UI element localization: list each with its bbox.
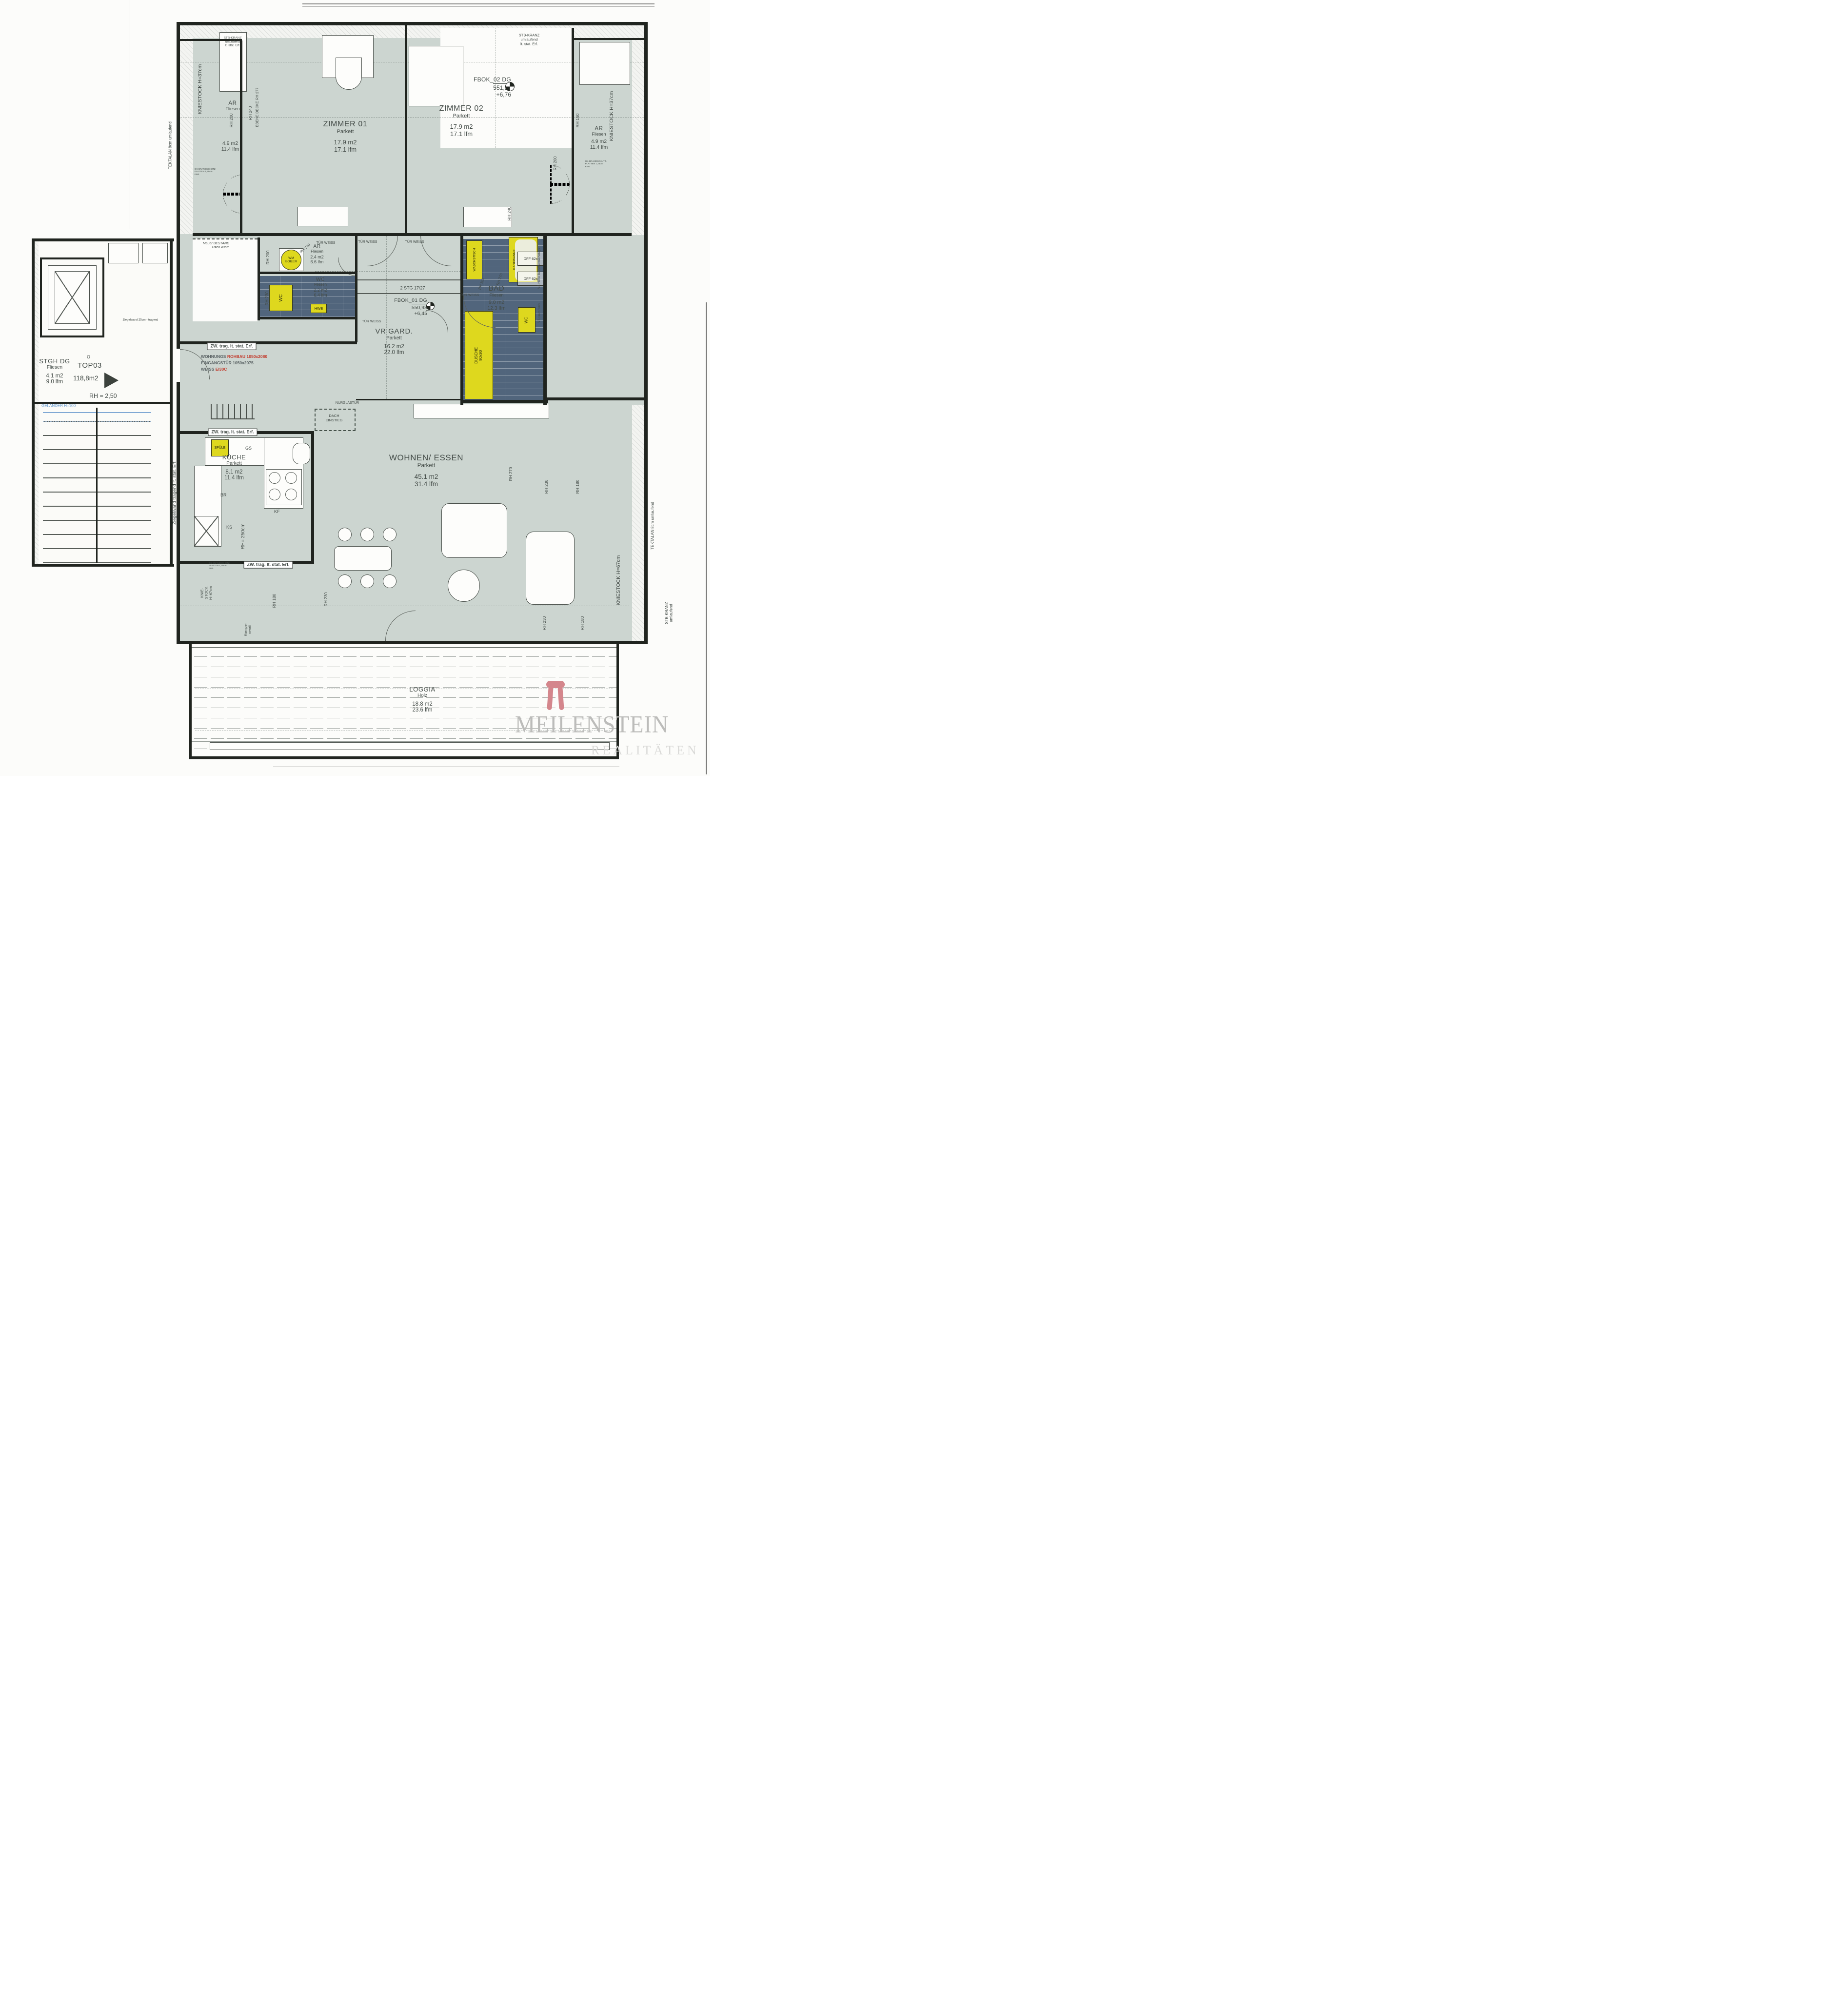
kemper-label: Kemper ventil: [244, 623, 253, 636]
level-label: FBOK_01 DG: [394, 297, 427, 303]
level-relative: +6,76: [496, 91, 511, 98]
rh-240-z2-label: RH 240: [507, 207, 512, 221]
wall-segment: [356, 399, 461, 400]
entrance-door-opening: [177, 349, 180, 382]
wall-segment: [40, 336, 104, 337]
stove-burner-icon: [269, 489, 280, 500]
wall-segment: [32, 238, 174, 241]
wall-segment: [40, 257, 104, 259]
gelaender-label: GELÄNDER H=100: [41, 403, 76, 408]
kniestock-strip: [180, 25, 644, 38]
room-name: ZIMMER 02: [439, 104, 484, 113]
furniture-box: [463, 207, 512, 227]
room-area: 4.9 m2: [222, 140, 238, 146]
room-area: 18.8 m2: [412, 701, 433, 707]
wall-segment: [102, 257, 104, 337]
room-name: VR GARD.: [375, 327, 413, 336]
tektalan-left-label: TEKTALAN 8cm umlaufend: [168, 121, 172, 169]
wall-segment: [177, 22, 180, 644]
room-floor: Fliesen: [47, 365, 62, 370]
dash-line: [180, 606, 629, 606]
rh-180-wohnen-1-label: RH 180: [575, 480, 580, 494]
room-name: LOGGIA: [409, 686, 435, 693]
tektalan-right-label: TEKTALAN 8cm umlaufend: [650, 502, 655, 550]
gk-left-label: GK-BRANDSCHUTZ- PLATTEN 1,25cm EI90: [195, 168, 216, 176]
wall-segment: [405, 24, 407, 236]
room-lfm: 22.0 lfm: [384, 350, 404, 356]
nurglastuer-label: NURGLASTÜR: [336, 401, 359, 405]
hwb-fixture: HWB: [311, 304, 327, 313]
room-lfm: 31.4 lfm: [415, 480, 438, 488]
rh-230-wc-label: RH 230: [264, 292, 269, 306]
furniture-box: [142, 243, 168, 263]
level-marker-fbok01: FBOK_01 DG 550,93 +6,45: [390, 297, 427, 316]
unit-circle-mark: O: [87, 355, 90, 359]
zw-trag-1-label: ZW. trag. lt. stat. Erf.: [207, 343, 256, 350]
entrance-note-gray: WEISS: [201, 367, 214, 372]
stb-kranz-top-right-label: STB-KRANZ umlaufend lt. stat. Erf.: [519, 34, 540, 47]
room-area: 2.2 m2: [314, 288, 327, 293]
tuer-weiss-z2-label: TÜR WEISS: [405, 240, 424, 244]
chair-circle: [383, 574, 397, 588]
furniture-box: [293, 443, 310, 464]
room-label-zimmer01: ZIMMER 01 Parkett 17.9 m2 17.1 lfm: [323, 120, 368, 153]
room-name: AR: [595, 126, 603, 132]
stove-burner-icon: [285, 472, 297, 484]
page-line: [130, 0, 130, 229]
wc-fixture: WC: [269, 285, 293, 311]
dff-label: DFF 62x: [524, 257, 538, 261]
furniture-box: [409, 46, 463, 106]
room-label-ar-left: AR Fliesen: [225, 100, 239, 111]
wall-segment: [258, 317, 357, 319]
kniestock-37-right-label: KNIESTOCK H=37cm: [609, 91, 615, 141]
room-floor: Holz: [417, 693, 427, 698]
wall-segment: [240, 40, 242, 236]
vs-raumhoch-label: VS raumhoch: [537, 303, 541, 322]
room-label-ar-right: AR Fliesen 4.9 m2 11.4 lfm: [590, 126, 608, 150]
rh-200-ar-label: RH 200: [265, 251, 270, 265]
room-name: WOHNEN/ ESSEN: [389, 453, 463, 463]
kniestock-67-right-label: KNIESTOCK H=67cm: [615, 555, 621, 606]
room-label-bad: BAD Fliesen 9.0 m2 12.3 lfm: [487, 284, 505, 311]
room-floor: Parkett: [226, 461, 242, 466]
room-lfm: 6.6 lfm: [310, 259, 323, 264]
rh-150-label: RH 150: [575, 114, 580, 128]
room-label-ar-left-values: 4.9 m2 11.4 lfm: [221, 140, 239, 152]
room-lfm: 11.4 lfm: [590, 144, 608, 150]
room-area: 16.2 m2: [384, 344, 404, 350]
wall-segment: [40, 257, 42, 337]
room-area: 17.9 m2: [334, 138, 357, 146]
room-name: WC: [316, 277, 325, 282]
level-elevation: 550,93: [412, 304, 427, 311]
stove-burner-icon: [269, 472, 280, 484]
coffee-table: [448, 570, 480, 602]
dusche-label: DUSCHE 90x90: [475, 347, 483, 364]
entrance-arrow-icon: [104, 373, 119, 388]
chair-circle: [360, 528, 374, 541]
room-area: 2.4 m2: [310, 255, 324, 259]
loggia-glass-line: [192, 647, 616, 648]
rh-180-kueche-label: RH 180: [272, 594, 277, 608]
furniture-box: [526, 532, 575, 605]
gk-right-label: GK-BRANDSCHUTZ- PLATTEN 1,25cm EI90: [585, 160, 607, 168]
ks-cabinet: [194, 516, 218, 546]
spuele-label: SPÜLE: [215, 446, 226, 450]
furniture-box: [334, 546, 392, 571]
kniestock-strip: [632, 405, 644, 641]
wall-segment: [177, 641, 648, 644]
loggia-inner-line: [192, 741, 616, 742]
furniture-box: [298, 207, 348, 226]
room-label-vr-gard: VR GARD. Parkett 16.2 m2 22.0 lfm: [375, 327, 413, 356]
room-lfm: 12.3 lfm: [487, 305, 505, 311]
furniture-box: [441, 503, 507, 558]
room-lfm: 23.6 lfm: [413, 707, 433, 713]
kniestock-67-left-label: KNIE- STOCK H=67cm: [200, 586, 214, 600]
room-label-wc: WC Fliesen 2.2 m2 6.4 lfm: [314, 277, 327, 297]
room-label-loggia: LOGGIA Holz 18.8 m2 23.6 lfm: [409, 686, 435, 713]
mauer-bestand-label: Mauer BESTAND H=ca 40cm: [203, 242, 229, 250]
ebene-decke-rh-277-label: EBENE DECKE RH 277: [256, 88, 260, 127]
br-appliance-label: BR: [220, 493, 227, 497]
wall-segment: [189, 756, 619, 759]
wall-segment: [574, 38, 645, 40]
room-lfm: 9.0 lfm: [46, 379, 63, 385]
page-line: [706, 302, 707, 774]
side-strip-floor: [547, 234, 644, 400]
room-lfm: 11.4 lfm: [224, 475, 244, 481]
stair-divider: [96, 408, 98, 563]
room-lfm: 17.1 lfm: [450, 130, 473, 138]
room-name: ZIMMER 01: [323, 120, 368, 129]
level-marker-fbok02: FBOK_02 DG 551,24 +6,76: [464, 76, 511, 98]
wall-segment: [572, 28, 574, 236]
level-relative: +6,45: [414, 311, 427, 316]
wall-segment: [177, 341, 357, 344]
entrance-door-note: WOHNUNGS ROHBAU 1050x2080 EINGANGSTÜR 10…: [201, 354, 267, 373]
vs-hoehe-label: VS Höhe Badewanne/Ablage: [537, 248, 541, 289]
wall-segment: [460, 400, 548, 403]
room-name: KÜCHE: [222, 454, 246, 461]
furniture-box: [414, 404, 549, 418]
rh-230-wohnen-2-label: RH 230: [542, 616, 547, 631]
wm-boiler-label: WM BOILER: [285, 257, 297, 263]
room-area: 45.1 m2: [415, 473, 438, 480]
survey-crosshair-icon: [505, 82, 515, 91]
room-name: STGH DG: [39, 357, 70, 365]
tuer-weiss-ar-label: TÜR WEISS: [317, 241, 336, 245]
furniture-box: [108, 243, 139, 263]
unit-number: TOP03: [78, 361, 102, 370]
tuer-weiss-z1-label: TÜR WEISS: [358, 240, 377, 244]
room-floor: Fliesen: [592, 132, 606, 137]
room-area: 8.1 m2: [225, 469, 242, 475]
wall-segment: [644, 22, 648, 644]
elevator-shaft: [55, 271, 90, 324]
dach-einstieg-label: DACH EINSTIEG: [325, 414, 342, 423]
rh-230-wohnen-1-label: RH 230: [544, 480, 549, 494]
room-floor: Fliesen: [225, 106, 239, 111]
wall-segment: [189, 644, 192, 759]
rh-240-z1-label: RH 240: [248, 106, 253, 120]
step-line: [357, 293, 460, 294]
unit-room-height: RH = 2,50: [89, 393, 117, 399]
room-lfm: 11.4 lfm: [221, 146, 239, 152]
wc-label: WC: [278, 294, 283, 301]
hwb-label: HWB: [315, 306, 323, 311]
room-name: BAD: [489, 284, 505, 293]
wall-segment: [193, 233, 632, 236]
entrance-note-red: EI30C: [216, 367, 227, 372]
watermark-sub: REALITÄTEN: [591, 743, 699, 758]
wm-boiler-fixture: WM BOILER: [281, 250, 301, 270]
stb-kranz-right-label: STB-KRANZ umlaufend: [665, 602, 674, 624]
room-label-kueche: KÜCHE Parkett 8.1 m2 11.4 lfm: [222, 454, 246, 481]
ziegelwand-25-label: Ziegelwand 25cm - tragend: [123, 318, 159, 322]
rh-200-z2-label: RH 200: [553, 157, 557, 171]
wall-segment: [258, 272, 356, 274]
wall-segment: [616, 644, 619, 759]
unit-area: 118,8m2: [73, 375, 99, 382]
ks-appliance-label: KS: [226, 525, 232, 530]
room-floor: Parkett: [453, 113, 470, 119]
waschtisch-fixture: WASCHSTISCH: [466, 240, 482, 279]
wall-segment: [311, 431, 314, 564]
room-label-stgh: STGH DG Fliesen 4.1 m2 9.0 lfm: [39, 357, 70, 385]
tuer-weiss-vr-label: TÜR WEISS: [362, 320, 381, 324]
wc-bad-fixture: WC: [518, 307, 536, 333]
room-area: 17.9 m2: [450, 123, 473, 130]
waschtisch-label: WASCHSTISCH: [473, 248, 476, 272]
wc-bad-label: WC: [525, 316, 529, 323]
watermark-brand: MEILENSTEIN: [515, 710, 669, 738]
stg-label: 2 STG 17/27: [400, 286, 425, 291]
rh-250-label: RH= 250cm: [240, 523, 246, 549]
rh-230-kueche-label: RH 230: [323, 593, 328, 607]
wall-segment: [460, 236, 463, 405]
entrance-note-gray: WOHNUNGS: [201, 354, 226, 359]
wall-segment: [355, 236, 357, 342]
room-floor: Fliesen: [311, 249, 323, 254]
chair-circle: [383, 528, 397, 541]
dff-label: DFF 62x: [524, 277, 538, 281]
gs-appliance-label: GS: [245, 446, 252, 451]
room-floor: Parkett: [337, 129, 354, 135]
rh-270-wohnen-label: RH 270: [508, 467, 513, 481]
room-lfm: 6.4 lfm: [314, 293, 327, 297]
room-label-ar-mid: AR Fliesen 2.4 m2 6.6 lfm: [310, 244, 324, 264]
survey-crosshair-icon: [426, 302, 435, 310]
wall-segment: [258, 237, 260, 320]
radiator-symbol: [211, 404, 255, 419]
room-name: AR: [228, 100, 237, 106]
step-line: [357, 279, 460, 280]
gk-bottom-label: GK-BRANDSCHUTZ- PLATTEN 1,25cm EI90: [209, 562, 230, 570]
ziegelwand-vertical-label: Ziegelwand tragend lt. stat. Erf.: [172, 460, 177, 524]
loggia-dim-line: [273, 767, 619, 767]
kf-appliance-label: KF: [274, 509, 280, 514]
entrance-note-gray: EINGANGSTÜR 1050x2075: [201, 360, 254, 365]
room-area: 4.9 m2: [591, 138, 607, 144]
wall-segment: [32, 564, 174, 567]
page-line: [302, 3, 655, 4]
kniestock-37-left-label: KNIESTOCK H=37cm: [197, 64, 203, 115]
room-floor: Fliesen: [489, 293, 503, 297]
wall-segment: [177, 22, 648, 25]
room-area: 9.0 m2: [489, 299, 504, 305]
page-line: [302, 6, 655, 7]
chair-circle: [338, 574, 352, 588]
zw-trag-2-label: ZW. trag. lt. stat. Erf.: [208, 429, 257, 436]
chair-circle: [360, 574, 374, 588]
zw-trag-3-label: ZW. trag. lt. stat. Erf.: [243, 561, 293, 569]
wall-segment: [543, 236, 547, 405]
chair-circle: [338, 528, 352, 541]
floor-plan: ZIMMER 01 Parkett 17.9 m2 17.1 lfm ZIMME…: [0, 0, 710, 776]
storage-room: [193, 238, 258, 321]
room-floor: Parkett: [386, 336, 402, 341]
tuer-weiss-bad-label: TÜR WEISS: [460, 294, 479, 297]
entrance-note-red: ROHBAU 1050x2080: [227, 354, 267, 359]
level-label: FBOK_02 DG: [474, 76, 511, 83]
meilenstein-logo-icon: [546, 681, 565, 711]
armchair: [336, 58, 362, 90]
room-lfm: 17.1 lfm: [334, 146, 357, 153]
stb-kranz-top-left-label: STB-KRANZ umlaufend lt. stat. Erf.: [224, 37, 242, 48]
room-area: 4.1 m2: [46, 373, 63, 379]
dash-line-vertical: [386, 236, 387, 399]
wall-segment: [547, 397, 645, 400]
kniestock-strip: [180, 38, 193, 234]
furniture-box: [210, 742, 610, 750]
room-label-zimmer02: ZIMMER 02 Parkett 17.9 m2 17.1 lfm: [439, 104, 484, 138]
room-floor: Fliesen: [314, 282, 327, 287]
room-floor: Parkett: [417, 463, 435, 469]
rh-200-z1-label: RH 200: [229, 114, 234, 128]
room-label-wohnen-essen: WOHNEN/ ESSEN Parkett 45.1 m2 31.4 lfm: [389, 453, 463, 488]
rh-180-wohnen-2-label: RH 180: [580, 616, 585, 631]
furniture-box: [579, 42, 630, 85]
stove-burner-icon: [285, 489, 297, 500]
kniestock-strip: [632, 38, 644, 235]
floor-plan-page: ZIMMER 01 Parkett 17.9 m2 17.1 lfm ZIMME…: [0, 0, 710, 776]
